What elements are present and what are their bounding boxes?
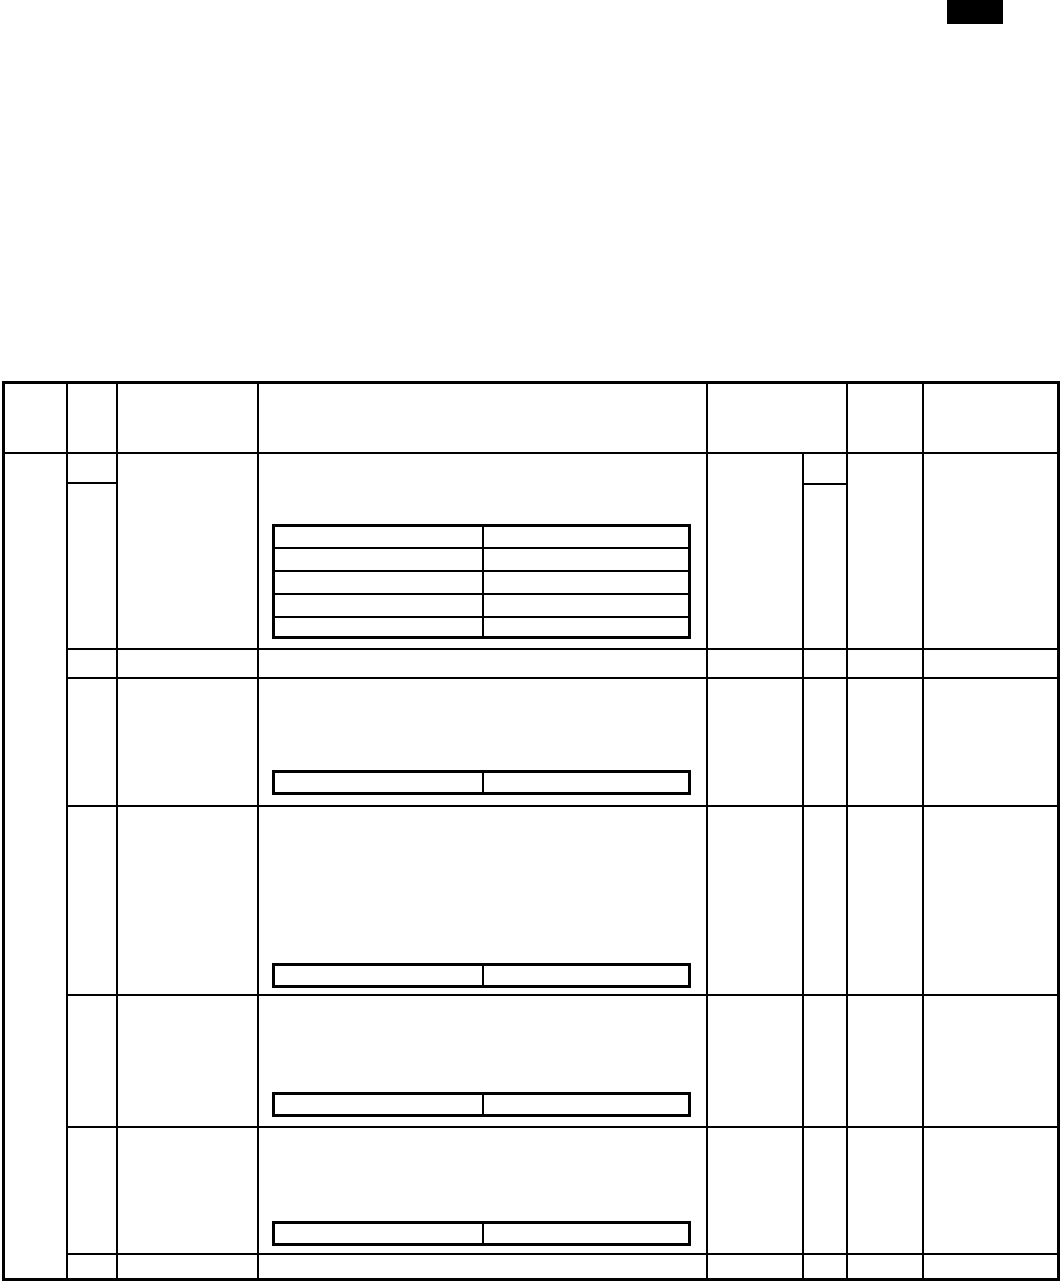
nested-table-1-column-divider (482, 527, 484, 636)
column-divider-2 (116, 384, 118, 1278)
nested-table-5-column-divider (482, 1224, 484, 1243)
header-row-divider (5, 452, 1057, 454)
document-page (0, 0, 1064, 1283)
nested-table-1-row-divider-3 (275, 593, 688, 595)
sub-cell-divider-col2 (66, 482, 116, 484)
nested-table-5 (272, 1221, 691, 1246)
row-divider-4 (66, 994, 1057, 996)
sub-cell-divider-col5 (802, 483, 846, 485)
main-table (2, 381, 1060, 1281)
nested-table-2-column-divider (482, 773, 484, 792)
column-divider-5-body-only (802, 452, 804, 1278)
nested-table-4-column-divider (482, 1095, 484, 1114)
nested-table-2 (272, 770, 691, 795)
nested-table-3 (272, 963, 691, 988)
row-divider-3 (66, 805, 1057, 807)
column-divider-6 (846, 384, 848, 1278)
nested-table-1-row-divider-2 (275, 570, 688, 572)
column-divider-4 (706, 384, 708, 1278)
row-divider-2 (66, 677, 1057, 679)
nested-table-1-row-divider-4 (275, 616, 688, 618)
column-divider-7 (922, 384, 924, 1278)
nested-table-3-column-divider (482, 966, 484, 985)
row-divider-6 (66, 1253, 1057, 1255)
top-right-black-marker (947, 0, 1003, 24)
row-divider-1 (66, 648, 1057, 650)
row-divider-5 (66, 1126, 1057, 1128)
nested-table-4 (272, 1092, 691, 1117)
nested-table-1 (272, 524, 691, 639)
column-divider-1 (66, 384, 68, 1278)
column-divider-3 (257, 384, 259, 1278)
nested-table-1-row-divider-1 (275, 547, 688, 549)
